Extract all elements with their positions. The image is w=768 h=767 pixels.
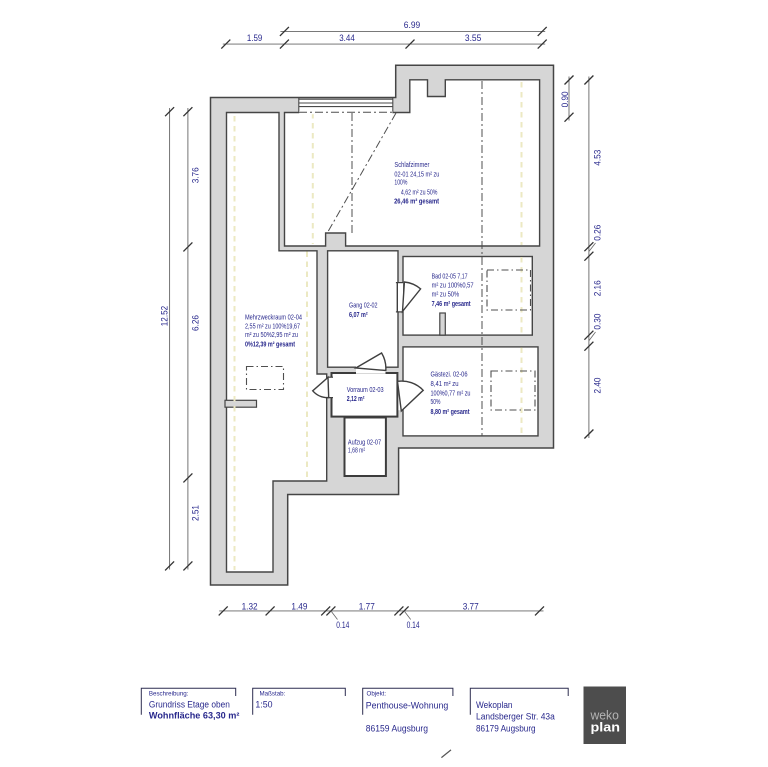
svg-text:2,55 m² zu 100%19,67: 2,55 m² zu 100%19,67 [245, 321, 300, 330]
svg-text:Landsberger Str. 43a: Landsberger Str. 43a [476, 712, 555, 722]
svg-text:m² zu 50%2,95 m² zu: m² zu 50%2,95 m² zu [245, 330, 298, 339]
svg-text:3.44: 3.44 [339, 32, 355, 43]
svg-text:1.77: 1.77 [359, 600, 375, 611]
svg-text:0.14: 0.14 [336, 619, 349, 630]
svg-text:Objekt:: Objekt: [367, 691, 387, 698]
svg-text:Schlafzimmer: Schlafzimmer [394, 160, 429, 169]
svg-text:plan: plan [591, 720, 621, 735]
svg-text:Gästezi. 02-06: Gästezi. 02-06 [431, 370, 468, 379]
svg-text:1:50: 1:50 [255, 700, 272, 710]
svg-text:1.32: 1.32 [242, 600, 258, 611]
svg-text:2,12 m²: 2,12 m² [347, 394, 365, 403]
svg-text:8,80 m² gesamt: 8,80 m² gesamt [431, 407, 470, 416]
svg-text:86159 Augsburg: 86159 Augsburg [366, 724, 428, 734]
svg-text:Grundriss Etage oben: Grundriss Etage oben [149, 700, 230, 710]
svg-text:0.14: 0.14 [407, 619, 420, 630]
svg-text:0.30: 0.30 [592, 314, 603, 330]
svg-text:50%: 50% [431, 397, 441, 406]
svg-text:Beschreibung:: Beschreibung: [149, 691, 189, 698]
svg-text:6.99: 6.99 [404, 19, 420, 30]
svg-text:26,46 m² gesamt: 26,46 m² gesamt [394, 196, 439, 205]
svg-text:0.90: 0.90 [559, 91, 570, 107]
svg-text:12.52: 12.52 [158, 306, 169, 327]
svg-text:2.16: 2.16 [592, 280, 603, 296]
svg-text:6.26: 6.26 [189, 315, 200, 331]
svg-text:1,68 m²: 1,68 m² [348, 446, 366, 455]
svg-text:100%: 100% [394, 178, 407, 187]
svg-text:Wekoplan: Wekoplan [476, 700, 513, 710]
svg-text:Vorraum 02-03: Vorraum 02-03 [347, 385, 384, 394]
svg-text:7,46 m² gesamt: 7,46 m² gesamt [432, 299, 471, 308]
svg-text:3.55: 3.55 [465, 32, 481, 43]
svg-text:Bad 02-05 7,17: Bad 02-05 7,17 [432, 271, 468, 280]
svg-text:3.76: 3.76 [189, 167, 200, 183]
svg-text:Gang 02-02: Gang 02-02 [349, 301, 378, 310]
svg-text:Maßstab:: Maßstab: [260, 691, 286, 698]
svg-text:8,41 m² zu: 8,41 m² zu [431, 379, 459, 388]
svg-text:2.40: 2.40 [592, 378, 603, 394]
svg-text:Wohnfläche 63,30 m²: Wohnfläche 63,30 m² [149, 711, 240, 721]
svg-text:m² zu 100%0,57: m² zu 100%0,57 [432, 281, 474, 290]
svg-text:2.51: 2.51 [189, 505, 200, 521]
svg-text:4.53: 4.53 [592, 150, 603, 166]
svg-text:m² zu 50%: m² zu 50% [432, 289, 460, 298]
svg-text:4,62 m² zu 50%: 4,62 m² zu 50% [401, 188, 438, 197]
svg-text:1.59: 1.59 [247, 32, 262, 43]
svg-text:3.77: 3.77 [463, 600, 479, 611]
svg-text:Penthouse-Wohnung: Penthouse-Wohnung [366, 701, 449, 711]
svg-text:86179 Augsburg: 86179 Augsburg [476, 724, 536, 734]
svg-text:6,07 m²: 6,07 m² [349, 310, 368, 319]
svg-text:1.49: 1.49 [291, 600, 307, 611]
svg-text:0%12,39 m² gesamt: 0%12,39 m² gesamt [245, 339, 295, 348]
svg-text:0.26: 0.26 [592, 225, 603, 241]
